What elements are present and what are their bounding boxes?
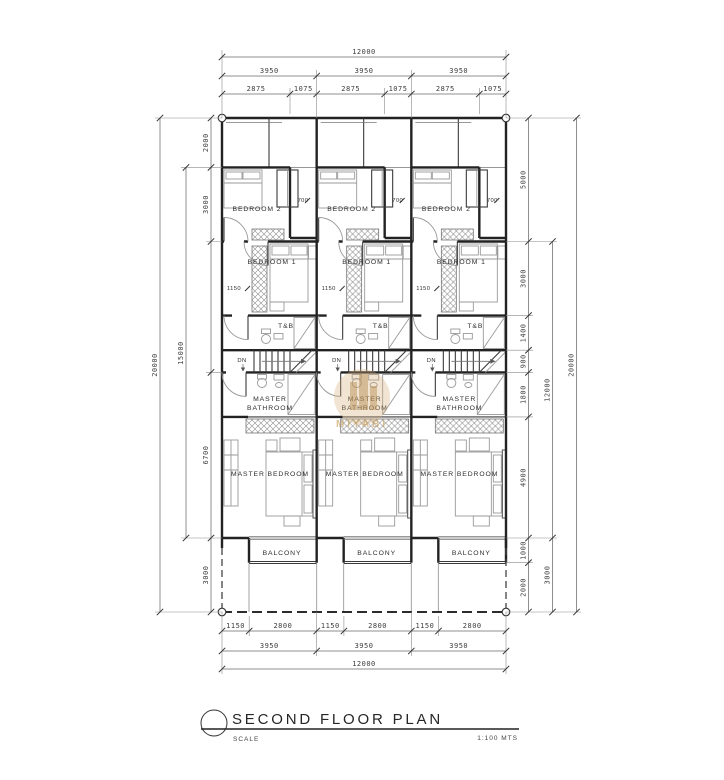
dim-closet-1150: 1150: [416, 286, 430, 292]
dim-right-intermediate-main: 12000: [544, 378, 552, 402]
dim-top-split-1: 1075: [294, 85, 313, 93]
dim-left-overall: 20000: [151, 353, 159, 377]
room-label-balcony: BALCONY: [452, 550, 491, 557]
dim-top-split-3: 1075: [389, 85, 408, 93]
building-linework: [218, 114, 510, 616]
title-bubble-icon: [201, 710, 227, 736]
room-label-balcony: BALCONY: [357, 550, 396, 557]
room-label-master-bedroom: MASTER BEDROOM: [420, 471, 498, 478]
dim-corridor-700: 700: [298, 198, 309, 204]
right-dimensions: 5000 3000 1400 900 1800 4900 1000 2000 1…: [506, 115, 581, 615]
room-label-master-bath-2: BATHROOM: [247, 405, 293, 412]
dim-right-seg-5: 4900: [520, 468, 528, 487]
dim-right-seg-3: 900: [520, 354, 528, 368]
dim-closet-1150: 1150: [227, 286, 241, 292]
room-label-master-bedroom: MASTER BEDROOM: [326, 471, 404, 478]
room-label-master-bath-1: MASTER: [253, 396, 287, 403]
dim-top-unit3: 3950: [449, 67, 468, 75]
room-label-bedroom2: BEDROOM 2: [327, 206, 376, 213]
title-block: SECOND FLOOR PLAN SCALE 1:100 MTS: [201, 710, 519, 743]
stair-dn-label: DN: [237, 358, 246, 364]
top-dimensions: 12000 3950 3950 3950 2875 1075 2875 1075…: [219, 48, 509, 118]
dim-bottom-split-3: 2800: [368, 622, 387, 630]
room-label-bedroom2: BEDROOM 2: [422, 206, 471, 213]
dim-right-seg-2: 1400: [520, 323, 528, 342]
dim-corridor-700: 700: [392, 198, 403, 204]
bottom-dimensions: 1150 2800 1150 2800 1150 2800 3950 3950 …: [219, 612, 509, 674]
unit-1-geometry: [222, 118, 317, 612]
dim-bottom-split-1: 2800: [273, 622, 292, 630]
room-label-bedroom2: BEDROOM 2: [233, 206, 282, 213]
room-label-bedroom1: BEDROOM 1: [342, 259, 391, 266]
room-label-master-bath-1: MASTER: [442, 396, 476, 403]
dim-bottom-overall: 12000: [352, 660, 376, 668]
unit-2-geometry: [317, 118, 412, 612]
dim-bottom-split-5: 2800: [463, 622, 482, 630]
dim-right-seg-6: 1000: [520, 541, 528, 560]
left-dimensions: 20000 15000 2000 3000 6700 3000: [151, 115, 222, 615]
stair-dn-label: DN: [332, 358, 341, 364]
dim-left-seg-1: 3000: [202, 195, 210, 214]
drawing-title: SECOND FLOOR PLAN: [232, 711, 443, 728]
dim-right-seg-1: 3000: [520, 269, 528, 288]
stair-dn-label: DN: [427, 358, 436, 364]
dim-left-intermediate: 15000: [177, 341, 185, 365]
dim-bottom-unit1: 3950: [260, 642, 279, 650]
dim-right-seg-4: 1800: [520, 385, 528, 404]
scale-value: 1:100 MTS: [477, 735, 518, 742]
dim-right-overall: 20000: [568, 353, 576, 377]
room-label-bedroom1: BEDROOM 1: [437, 259, 486, 266]
dim-right-seg-7: 2000: [520, 578, 528, 597]
dim-bottom-split-4: 1150: [415, 622, 434, 630]
room-label-bedroom1: BEDROOM 1: [248, 259, 297, 266]
room-label-tb: T&B: [373, 323, 389, 330]
unit-3-geometry: [411, 118, 506, 612]
scale-label: SCALE: [233, 736, 259, 743]
dim-top-unit1: 3950: [260, 67, 279, 75]
dim-top-unit2: 3950: [355, 67, 374, 75]
room-label-tb: T&B: [278, 323, 294, 330]
room-label-master-bedroom: MASTER BEDROOM: [231, 471, 309, 478]
dim-left-seg-3: 3000: [202, 566, 210, 585]
lower-floor-dashed-edges: [222, 548, 506, 612]
dim-corridor-700: 700: [487, 198, 498, 204]
dim-right-intermediate-lower: 3000: [544, 566, 552, 585]
dim-bottom-unit3: 3950: [449, 642, 468, 650]
floor-plan-page: BEDROOM 2 700 BEDROOM 1 1150 T&B DN MAST…: [0, 0, 724, 780]
dim-right-seg-0: 5000: [520, 170, 528, 189]
dim-top-split-5: 1075: [483, 85, 502, 93]
dim-bottom-split-0: 1150: [226, 622, 245, 630]
room-label-balcony: BALCONY: [263, 550, 302, 557]
dim-closet-1150: 1150: [322, 286, 336, 292]
dim-left-seg-2: 6700: [202, 446, 210, 465]
dim-top-split-4: 2875: [436, 85, 455, 93]
room-label-tb: T&B: [467, 323, 483, 330]
dim-top-split-2: 2875: [341, 85, 360, 93]
dim-left-seg-0: 2000: [202, 133, 210, 152]
dim-bottom-split-2: 1150: [321, 622, 340, 630]
watermark-text: MIYABI: [336, 419, 388, 430]
watermark: MIYABI: [334, 369, 390, 430]
dim-bottom-unit2: 3950: [355, 642, 374, 650]
room-label-master-bath-2: BATHROOM: [436, 405, 482, 412]
below-balcony-lines: [317, 563, 412, 612]
dim-top-overall: 12000: [352, 48, 376, 56]
dim-top-split-0: 2875: [247, 85, 266, 93]
floor-plan-drawing: BEDROOM 2 700 BEDROOM 1 1150 T&B DN MAST…: [0, 0, 724, 780]
